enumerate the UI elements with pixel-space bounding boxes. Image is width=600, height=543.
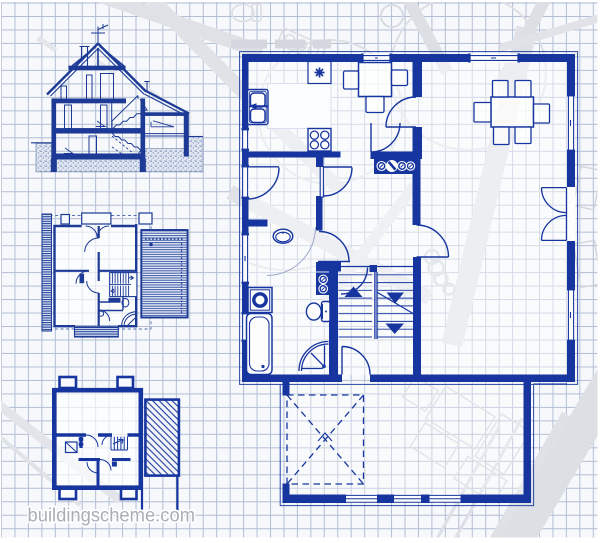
svg-text:buildingscheme.com: buildingscheme.com bbox=[28, 506, 196, 527]
